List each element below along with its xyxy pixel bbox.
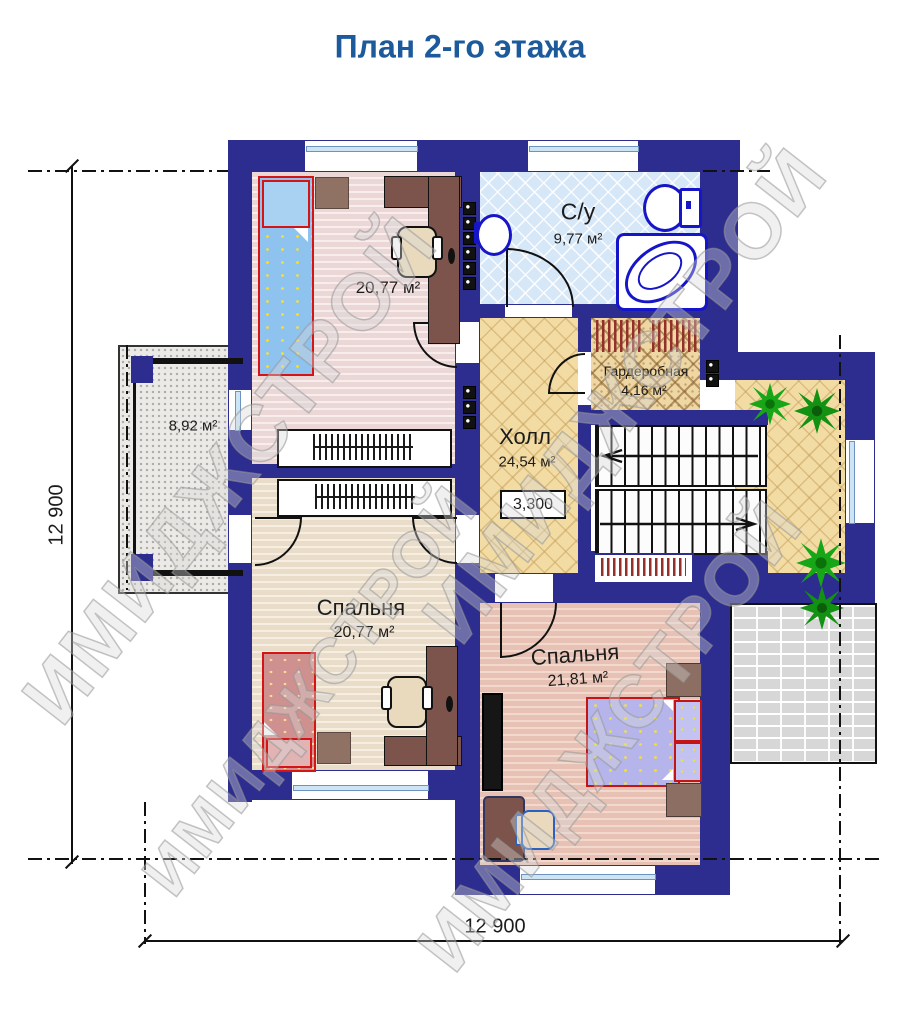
- nightstand: [315, 177, 349, 209]
- elevation-mark: 3,300: [500, 490, 566, 519]
- window: [306, 146, 418, 152]
- wardrobe-shelving: [652, 320, 698, 352]
- nightstand: [317, 732, 351, 764]
- window: [293, 785, 429, 791]
- hall-area: 24,54 м²: [498, 454, 555, 471]
- closet-hangers: [313, 434, 413, 460]
- window: [521, 874, 656, 880]
- window-opening: [520, 866, 655, 894]
- bathtub-icon: [616, 233, 708, 311]
- balcony-door-opening: [229, 515, 251, 563]
- chair-armrest: [391, 236, 402, 260]
- study-area: 20,77 м²: [356, 278, 421, 298]
- dimension-line-bottom: [144, 940, 843, 942]
- closet: [277, 429, 452, 468]
- plant-icon: [746, 381, 794, 427]
- bathroom-name: С/у: [561, 199, 596, 226]
- desk-handle: [446, 696, 453, 712]
- stair-direction-arrow-up: [598, 448, 762, 464]
- pillow: [262, 180, 310, 228]
- bathroom-area: 9,77 м²: [554, 231, 603, 248]
- door-opening: [456, 515, 479, 563]
- door-opening: [495, 574, 553, 602]
- dimension-left-value: 12 900: [46, 484, 69, 545]
- axis-line: [126, 345, 128, 590]
- plant-icon: [790, 386, 844, 436]
- office-chair: [387, 676, 427, 728]
- wall: [700, 603, 730, 895]
- extension-line: [839, 335, 841, 944]
- elevation-value: 3,300: [513, 496, 553, 514]
- bedroom-left-area: 20,77 м²: [334, 624, 395, 642]
- wardrobe-name: Гардеробная: [604, 363, 689, 379]
- page-title: План 2-го этажа: [335, 29, 586, 66]
- stair-direction-arrow-down: [596, 516, 760, 532]
- pillow: [674, 742, 702, 782]
- wardrobe-shelving: [596, 320, 644, 352]
- bedroom-left-name: Спальня: [317, 595, 405, 621]
- blanket-fold: [294, 228, 308, 242]
- blanket-fold: [662, 700, 673, 711]
- dimension-line-left: [71, 166, 73, 864]
- desk-handle: [448, 248, 455, 264]
- balcony-railing: [153, 358, 243, 364]
- nightstand: [666, 663, 702, 697]
- wall: [578, 410, 768, 425]
- blanket-fold: [264, 722, 277, 735]
- balcony-post: [131, 356, 153, 383]
- floor-plan: План 2-го этажа: [0, 0, 900, 1014]
- balcony-post: [131, 554, 153, 581]
- extension-line: [28, 858, 882, 860]
- pillow: [266, 738, 312, 768]
- balcony-railing: [133, 383, 136, 555]
- office-chair: [397, 226, 437, 278]
- balcony-area: 8,92 м²: [169, 418, 218, 435]
- chair-armrest: [422, 686, 433, 710]
- closet: [277, 479, 452, 517]
- window: [235, 391, 241, 431]
- balcony-railing: [153, 570, 243, 576]
- closet-hangers: [601, 558, 686, 576]
- closet-hangers: [315, 484, 415, 509]
- nightstand: [666, 783, 702, 817]
- hall-name: Холл: [499, 424, 551, 450]
- closet: [593, 553, 694, 584]
- dimension-bottom-value: 12 900: [464, 916, 525, 939]
- chair: [521, 810, 555, 850]
- pillow: [674, 700, 702, 742]
- extension-line: [144, 802, 146, 944]
- chair-armrest: [432, 236, 443, 260]
- chair-armrest: [381, 686, 392, 710]
- sink-icon: [476, 214, 512, 256]
- tv-icon: [482, 693, 503, 791]
- extension-line: [28, 170, 228, 172]
- extension-line: [703, 170, 770, 172]
- single-bed: [262, 652, 316, 772]
- wall: [228, 140, 252, 802]
- wardrobe-area: 4,16 м²: [621, 382, 666, 398]
- toilet-button: [686, 201, 691, 209]
- window: [849, 441, 855, 524]
- window: [529, 146, 639, 152]
- single-bed: [258, 176, 314, 376]
- blanket-fold: [662, 769, 673, 780]
